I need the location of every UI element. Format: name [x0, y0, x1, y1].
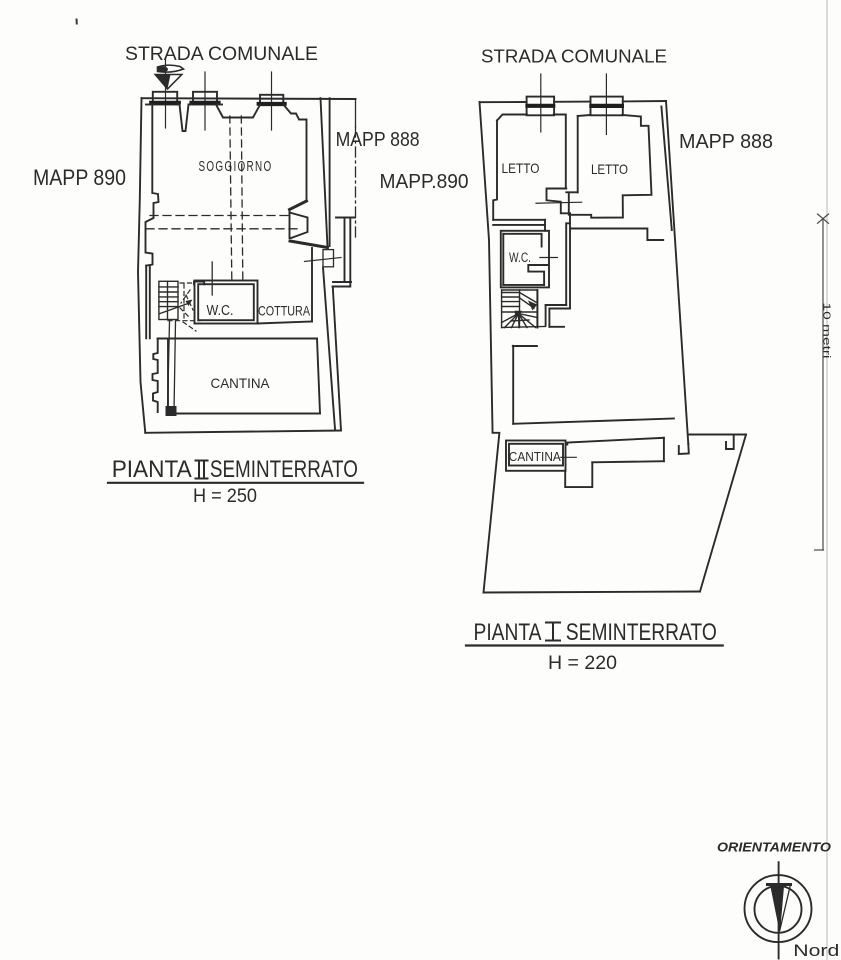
svg-text:STRADA COMUNALE: STRADA COMUNALE	[481, 46, 667, 67]
svg-text:W.C.: W.C.	[207, 303, 234, 319]
svg-text:SOGGIORNO: SOGGIORNO	[199, 158, 273, 175]
svg-text:SEMINTERRATO: SEMINTERRATO	[566, 619, 717, 646]
svg-text:MAPP 888: MAPP 888	[336, 129, 420, 151]
svg-text:10 metri: 10 metri	[821, 303, 832, 359]
svg-text:LETTO: LETTO	[502, 160, 540, 176]
svg-text:PIANTA: PIANTA	[474, 619, 542, 646]
svg-text:CANTINA: CANTINA	[211, 375, 271, 391]
svg-text:ORIENTAMENTO: ORIENTAMENTO	[717, 840, 831, 855]
svg-text:MAPP 890: MAPP 890	[33, 165, 126, 190]
svg-text:H = 250: H = 250	[193, 486, 257, 507]
svg-text:PIANTA: PIANTA	[112, 456, 192, 483]
svg-text:MAPP 888: MAPP 888	[679, 131, 773, 153]
svg-text:Nord: Nord	[793, 942, 839, 960]
svg-text:COTTURA: COTTURA	[258, 303, 311, 319]
svg-text:STRADA COMUNALE: STRADA COMUNALE	[125, 44, 318, 65]
svg-text:MAPP.890: MAPP.890	[380, 171, 469, 193]
svg-text:LETTO: LETTO	[591, 161, 628, 177]
svg-text:W.C.: W.C.	[509, 250, 531, 265]
svg-text:H = 220: H = 220	[548, 653, 617, 674]
svg-text:CANTINA: CANTINA	[509, 450, 562, 464]
svg-text:SEMINTERRATO: SEMINTERRATO	[210, 456, 358, 483]
